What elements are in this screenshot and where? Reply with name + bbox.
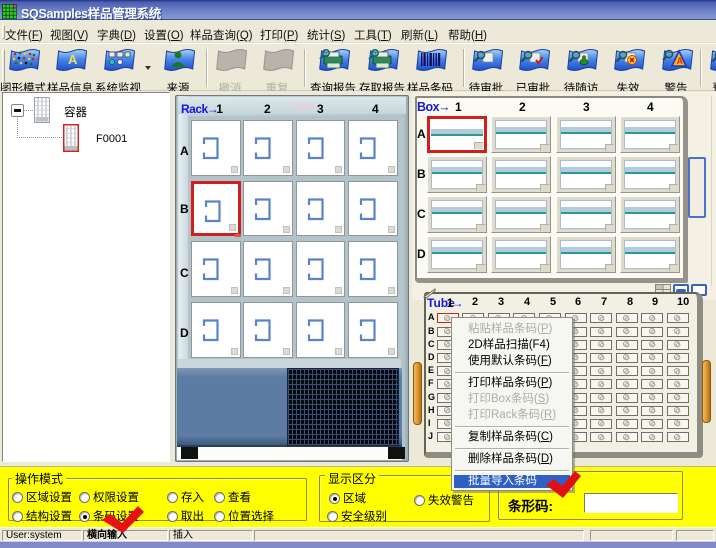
svg-text:A: A xyxy=(677,56,684,66)
svg-text:A: A xyxy=(68,52,78,67)
